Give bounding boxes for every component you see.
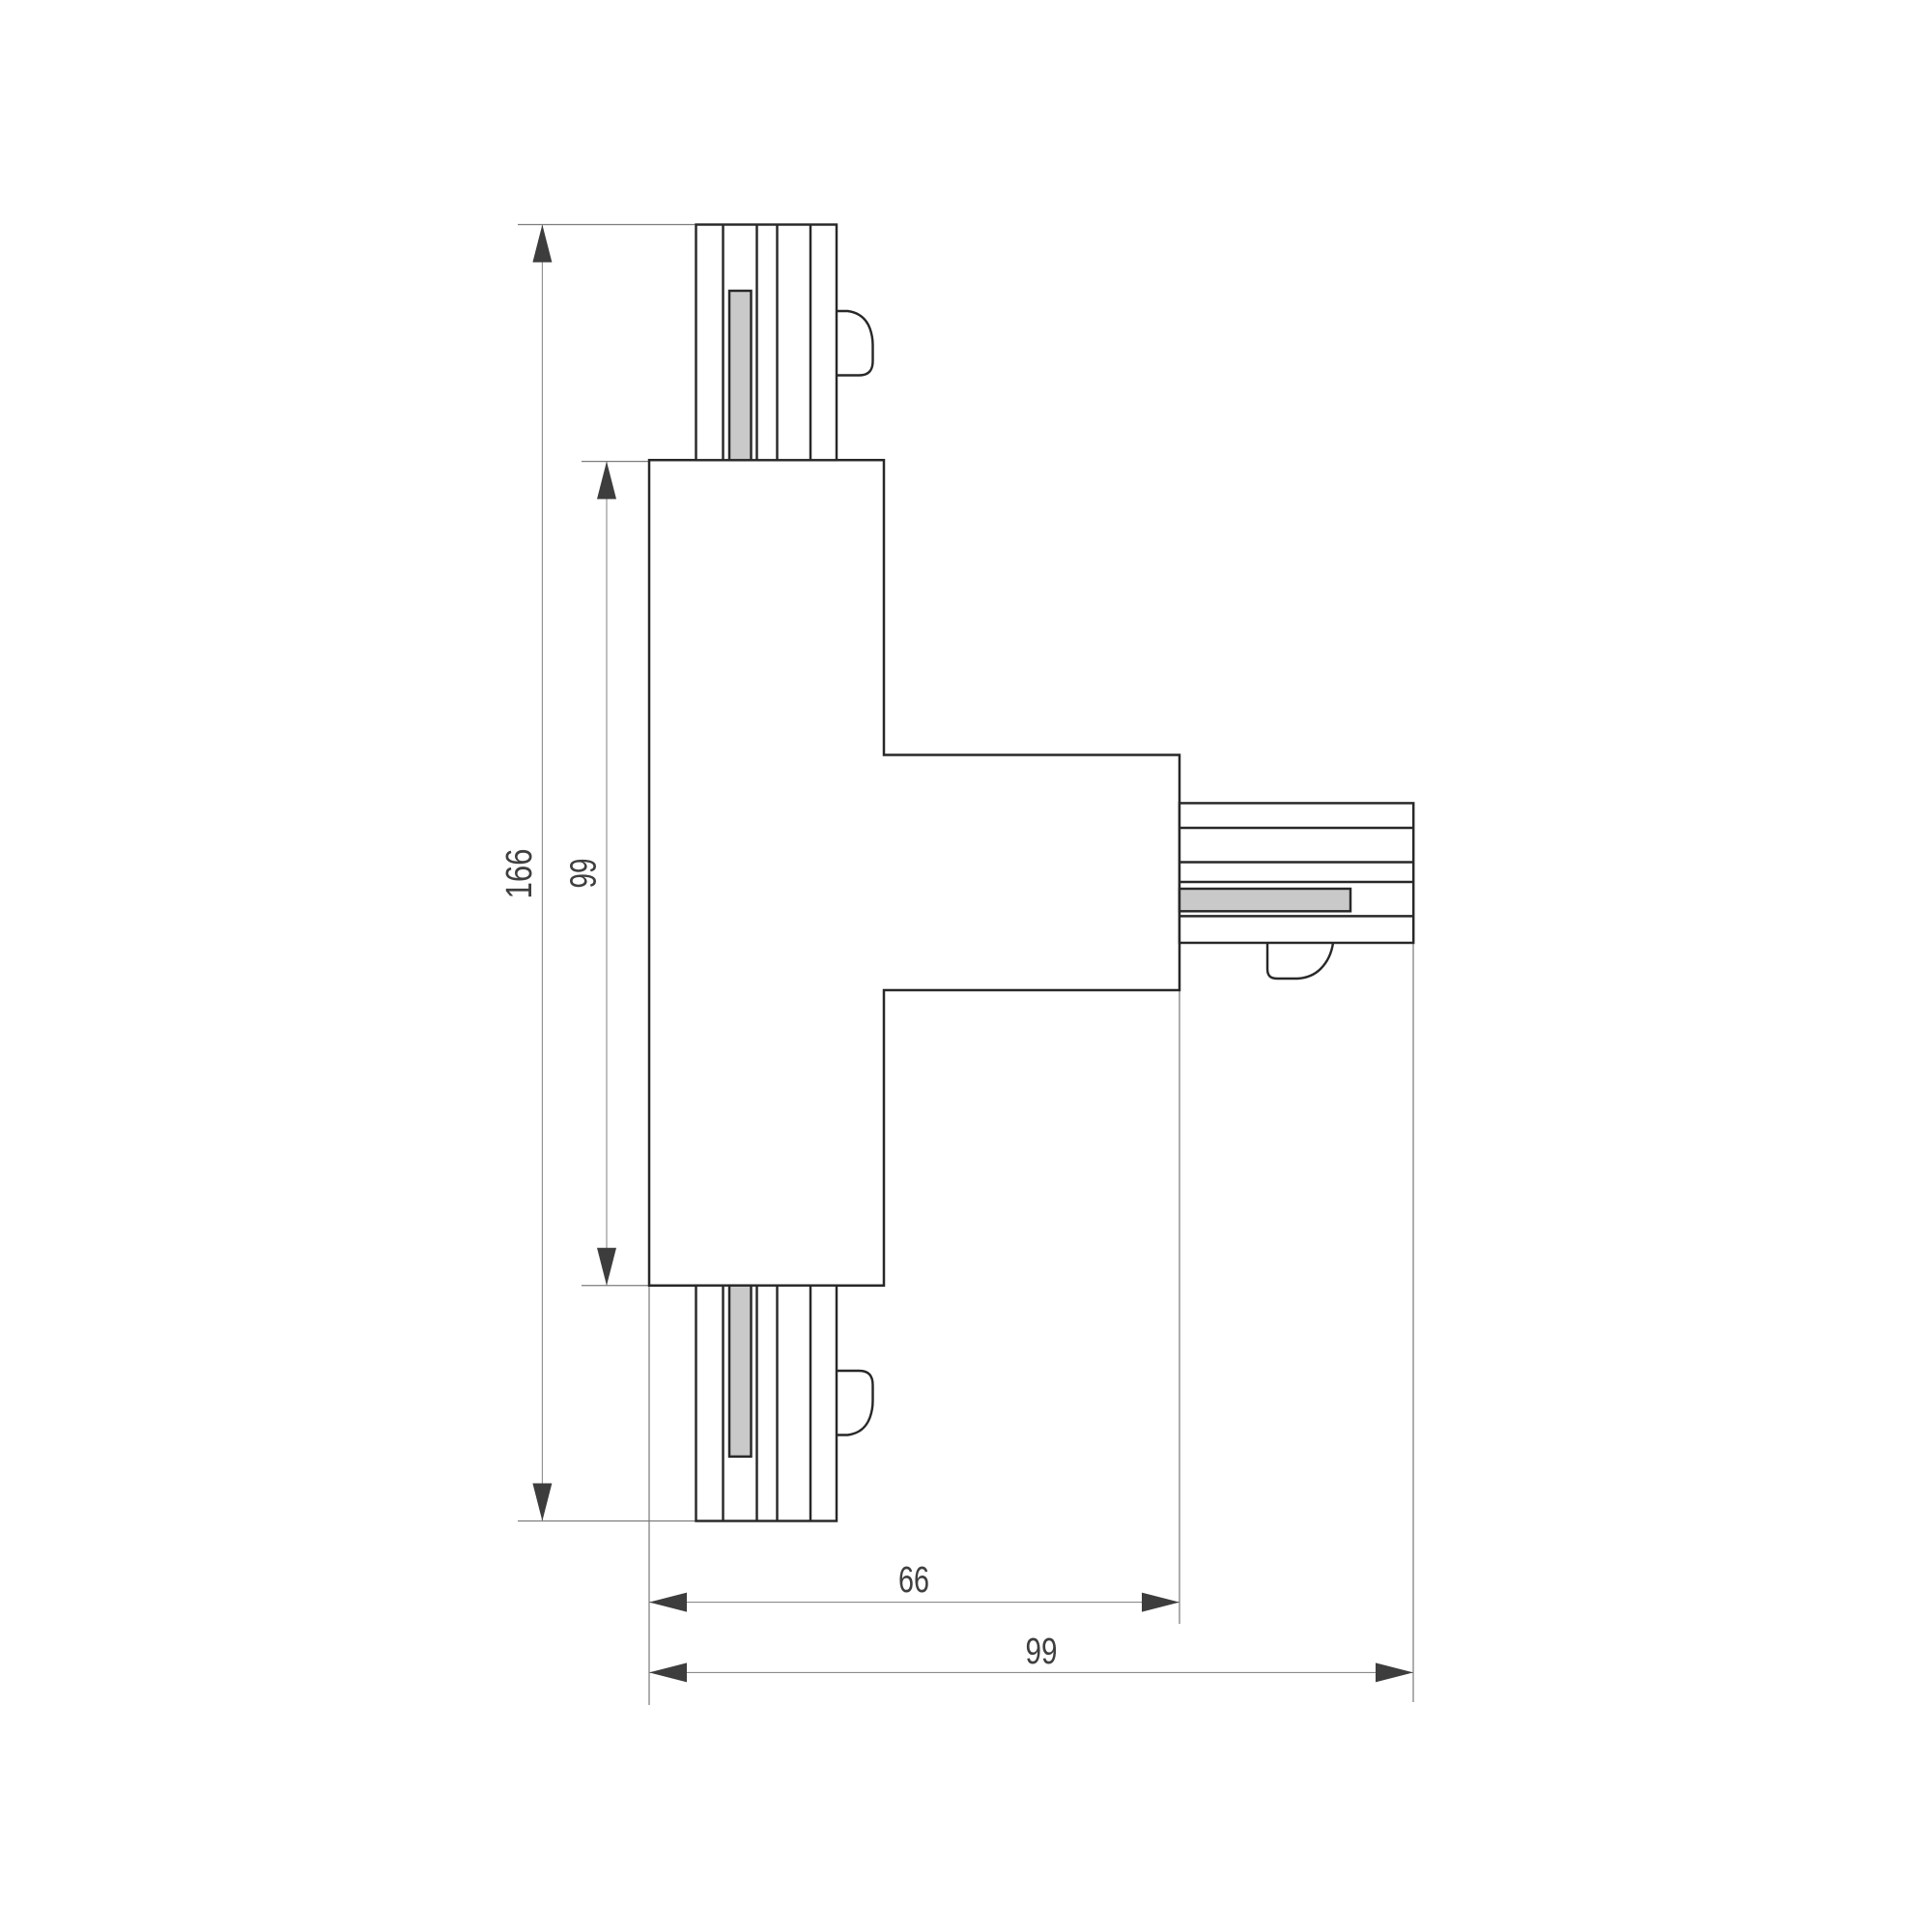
svg-text:99: 99 (564, 859, 605, 889)
svg-text:99: 99 (1026, 1632, 1058, 1672)
svg-text:166: 166 (499, 849, 540, 899)
svg-text:66: 66 (898, 1560, 929, 1601)
